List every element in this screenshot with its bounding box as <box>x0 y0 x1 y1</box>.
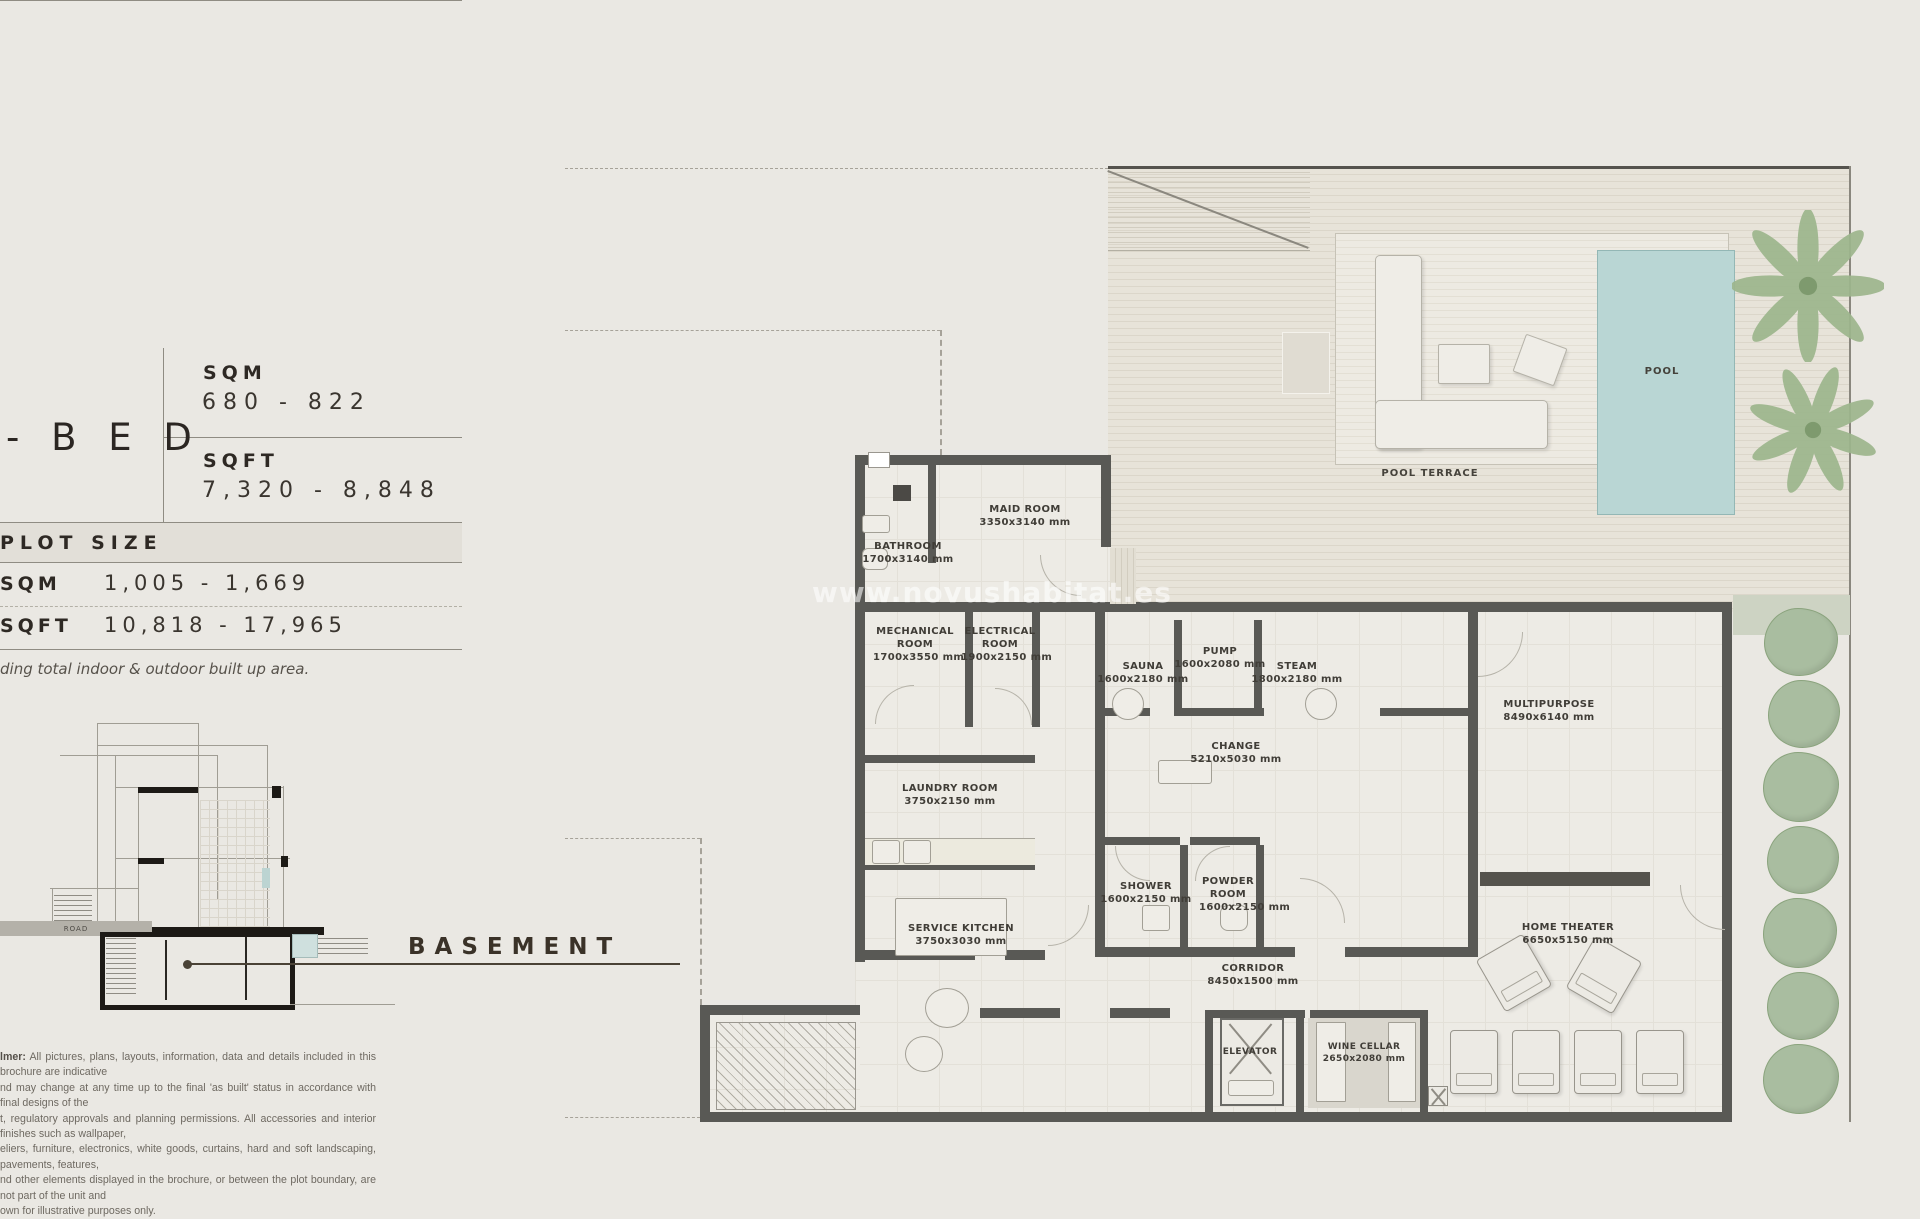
wall-segment <box>700 1112 1732 1122</box>
section-lintel <box>138 787 198 793</box>
room-label-bathroom: BATHROOM1700x3140 mm <box>862 540 953 566</box>
wall-segment <box>855 455 1111 465</box>
section-lintel <box>272 786 281 798</box>
disclaimer-text: lmer: All pictures, plans, layouts, info… <box>0 1050 376 1219</box>
theater-screen <box>1480 872 1650 886</box>
bush-icon <box>1763 1044 1839 1114</box>
outdoor-table <box>1438 344 1490 384</box>
wall-segment <box>980 1008 1060 1018</box>
round-table <box>925 988 969 1028</box>
section-basement-stairs <box>106 938 136 998</box>
boundary-dashed-line <box>565 168 1108 169</box>
room-label-powder-room: POWDER ROOM1600x2150 mm <box>1199 875 1257 914</box>
washer <box>872 840 900 864</box>
panel-row-divider <box>163 437 462 438</box>
bush-icon <box>1763 752 1839 822</box>
room-label-elevator: ELEVATOR <box>1223 1047 1278 1059</box>
palm-tree-icon <box>1732 210 1884 362</box>
round-table <box>905 1036 943 1072</box>
plot-row-divider <box>0 606 462 607</box>
elevator-sill <box>1228 1080 1274 1096</box>
disclaimer-line: eliers, furniture, electronics, white go… <box>0 1142 376 1173</box>
pool-terrace-label: POOL TERRACE <box>1381 468 1478 479</box>
plot-sqm-value: 1,005 - 1,669 <box>104 571 310 595</box>
section-line <box>97 723 198 724</box>
panel-top-border <box>0 0 462 1</box>
wall-segment <box>1205 1010 1213 1112</box>
wall-segment <box>1095 947 1295 957</box>
section-line <box>290 1004 395 1005</box>
wall-segment <box>1345 947 1478 957</box>
boundary-dashed-line <box>565 330 940 331</box>
basement-title: BASEMENT <box>408 934 621 960</box>
section-pool-cut <box>292 934 318 958</box>
outdoor-sofa <box>1375 400 1548 449</box>
section-line <box>97 745 267 746</box>
watermark-text: www.novushabitat.es <box>812 576 1172 609</box>
bush-icon <box>1768 680 1840 748</box>
section-outdoor-steps <box>318 938 368 958</box>
water-heater-marker <box>893 485 911 501</box>
wall-segment <box>855 602 865 962</box>
brochure-page: { "panel": { "bed_label": "- B E D", "si… <box>0 0 1920 1200</box>
room-label-change: CHANGE5210x5030 mm <box>1190 740 1281 766</box>
bush-icon <box>1763 898 1837 968</box>
wall-segment <box>1205 1010 1305 1018</box>
wall-segment <box>1190 837 1260 845</box>
theater-seat <box>1636 1030 1684 1094</box>
disclaimer-line: nd may change at any time up to the fina… <box>0 1081 376 1112</box>
disclaimer-lead: lmer: <box>0 1051 26 1063</box>
pool-label: POOL <box>1645 366 1680 377</box>
theater-seat <box>1512 1030 1560 1094</box>
wall-segment <box>1722 602 1732 1122</box>
room-label-multipurpose: MULTIPURPOSE8490x6140 mm <box>1503 698 1594 724</box>
wall-segment <box>1468 612 1478 957</box>
section-lintel <box>138 858 164 864</box>
theater-seat <box>1450 1030 1498 1094</box>
built-area-note: ding total indoor & outdoor built up are… <box>0 660 309 678</box>
disclaimer-line: lmer: All pictures, plans, layouts, info… <box>0 1050 376 1081</box>
sqm-label: SQM <box>203 362 267 384</box>
bed-count-label: - B E D <box>6 416 202 459</box>
wall-segment <box>700 1005 860 1015</box>
dryer <box>903 840 931 864</box>
plot-sqft-label: SQFT <box>0 615 72 637</box>
room-label-steam: STEAM1800x2180 mm <box>1251 660 1342 686</box>
bush-icon <box>1767 826 1839 894</box>
boundary-dashed-line <box>940 330 942 455</box>
section-window-glass <box>262 868 270 888</box>
room-label-mechanical-room: MECHANICAL ROOM1700x3550 mm <box>873 625 957 664</box>
disclaimer-line: own for illustrative purposes only. <box>0 1204 376 1219</box>
room-label-shower: SHOWER1600x2150 mm <box>1100 880 1191 906</box>
bush-icon <box>1764 608 1838 676</box>
wall-segment <box>1310 1010 1425 1018</box>
pool <box>1597 250 1735 515</box>
section-basement-divider <box>245 937 247 1000</box>
plot-sqft-value: 10,818 - 17,965 <box>104 613 347 637</box>
wall-segment <box>1101 455 1111 547</box>
room-label-corridor: CORRIDOR8450x1500 mm <box>1207 962 1298 988</box>
disclaimer-line: t, regulatory approvals and planning per… <box>0 1112 376 1143</box>
wall-segment <box>1105 837 1180 845</box>
terrace-planter <box>1282 332 1330 394</box>
room-label-wine-cellar: WINE CELLAR2650x2080 mm <box>1323 1042 1406 1065</box>
wall-segment <box>1256 845 1264 950</box>
boundary-dashed-line <box>565 838 700 839</box>
steam-stool <box>1305 688 1337 720</box>
room-label-maid-room: MAID ROOM3350x3140 mm <box>979 503 1070 529</box>
small-x-box <box>1428 1086 1448 1106</box>
disclaimer-line: nd other elements displayed in the broch… <box>0 1173 376 1204</box>
shower-tray <box>1142 905 1170 931</box>
sauna-stool <box>1112 688 1144 720</box>
wall-segment <box>1420 1010 1428 1112</box>
boundary-dashed-line <box>700 838 702 1005</box>
boundary-dashed-line <box>565 1117 700 1118</box>
wall-segment <box>700 1005 710 1122</box>
plot-size-title: PLOT SIZE <box>0 532 163 554</box>
section-line <box>60 755 217 756</box>
room-label-laundry-room: LAUNDRY ROOM3750x2150 mm <box>902 782 998 808</box>
room-label-electrical-room: ELECTRICAL ROOM1900x2150 mm <box>961 625 1039 664</box>
leader-line <box>188 963 680 965</box>
section-line <box>50 888 138 889</box>
theater-seat <box>1574 1030 1622 1094</box>
palm-tree-icon <box>1745 362 1881 498</box>
road-label: ROAD <box>64 925 88 933</box>
wall-segment <box>1110 1008 1170 1018</box>
section-grid-hatch <box>200 800 270 927</box>
section-basement-divider <box>165 940 167 1000</box>
bush-icon <box>1767 972 1839 1040</box>
wall-segment <box>1174 708 1264 716</box>
wall-segment <box>1005 950 1045 960</box>
plot-sqm-label: SQM <box>0 573 61 595</box>
wall-segment <box>1296 1010 1304 1112</box>
room-label-service-kitchen: SERVICE KITCHEN3750x3030 mm <box>908 922 1014 948</box>
staircase-hatch <box>716 1022 856 1110</box>
plot-bottom-border <box>0 649 462 650</box>
wall-segment <box>865 755 1035 763</box>
section-lintel <box>281 856 288 867</box>
sqft-label: SQFT <box>203 450 279 472</box>
sqm-value: 680 - 822 <box>202 390 371 415</box>
bathroom-sink <box>862 515 890 533</box>
window-marker <box>868 452 890 468</box>
section-line <box>115 755 116 933</box>
sqft-value: 7,320 - 8,848 <box>202 478 441 503</box>
room-label-home-theater: HOME THEATER6650x5150 mm <box>1522 921 1614 947</box>
wall-segment <box>1380 708 1470 716</box>
